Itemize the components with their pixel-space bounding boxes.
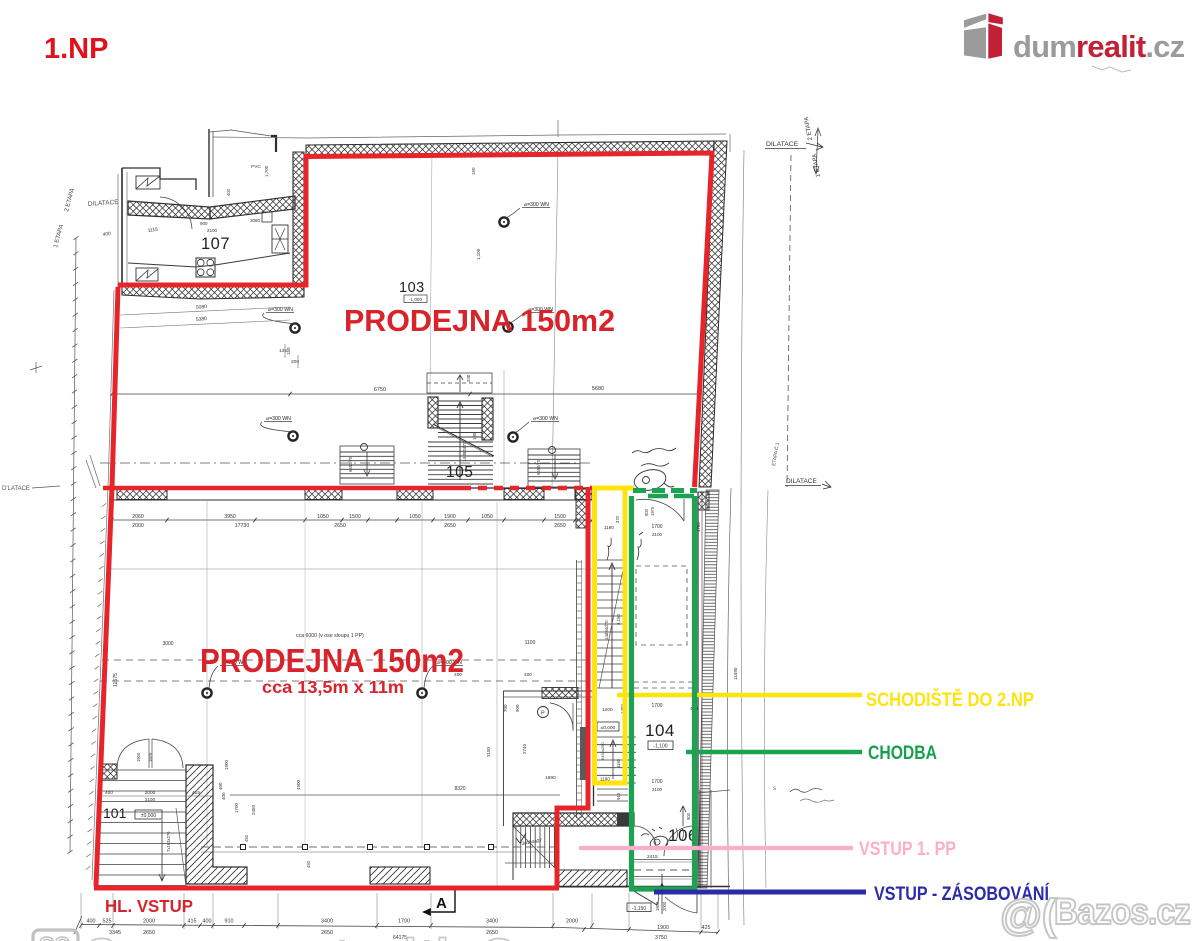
svg-text:1800: 1800 (655, 901, 660, 911)
svg-text:2000: 2000 (662, 901, 667, 911)
svg-text:HL. VSTUP: HL. VSTUP (105, 896, 193, 916)
svg-text:-1,100: -1,100 (653, 744, 667, 750)
svg-text:SCHODIŠTĚ DO 2.NP: SCHODIŠTĚ DO 2.NP (866, 689, 1034, 711)
svg-text:5380: 5380 (196, 316, 208, 323)
svg-text:400: 400 (102, 231, 111, 238)
svg-text:1970: 1970 (650, 506, 655, 516)
svg-text:910: 910 (616, 792, 621, 800)
svg-text:14d84d70: 14d84d70 (462, 441, 467, 462)
svg-text:11490: 11490 (733, 667, 738, 680)
svg-text:cca 6000 (v ose sloupu 1 PP): cca 6000 (v ose sloupu 1 PP) (296, 633, 364, 639)
svg-text:3080: 3080 (250, 218, 261, 223)
svg-text:400: 400 (221, 792, 226, 800)
svg-text:6450/70: 6450/70 (348, 456, 353, 472)
svg-text:1700: 1700 (651, 524, 662, 530)
svg-text:415: 415 (192, 790, 200, 796)
svg-text:D'LATACE: D'LATACE (2, 486, 30, 492)
svg-text:DILATACE: DILATACE (766, 141, 799, 148)
svg-text:2000: 2000 (132, 523, 144, 529)
svg-text:11575: 11575 (113, 673, 119, 687)
svg-text:PRODEJNA 150m2: PRODEJNA 150m2 (200, 642, 464, 679)
svg-text:180: 180 (472, 432, 477, 440)
svg-text:1.NP: 1.NP (44, 33, 108, 65)
svg-text:1050: 1050 (317, 514, 329, 520)
svg-text:6453x250: 6453x250 (600, 742, 605, 760)
svg-text:1,700: 1,700 (264, 165, 269, 177)
svg-text:⌀=300 WN: ⌀=300 WN (533, 416, 558, 422)
svg-text:3400: 3400 (321, 919, 333, 925)
svg-text:DILATACE: DILATACE (786, 478, 817, 485)
svg-text:1500: 1500 (554, 514, 566, 520)
svg-text:3,150: 3,150 (616, 613, 621, 625)
svg-text:@(: @( (1000, 891, 1057, 939)
svg-text:900: 900 (200, 221, 208, 226)
svg-text:PVC: PVC (251, 164, 261, 170)
svg-text:1100: 1100 (525, 640, 536, 646)
svg-text:3000: 3000 (162, 641, 173, 647)
svg-text:1900: 1900 (657, 925, 669, 931)
svg-text:900: 900 (686, 812, 691, 820)
svg-text:7x163x270: 7x163x270 (166, 831, 171, 852)
svg-text:cca 13,5m x 11m: cca 13,5m x 11m (262, 677, 404, 697)
svg-text:1900: 1900 (224, 759, 229, 770)
svg-text:107: 107 (201, 235, 230, 253)
svg-text:6750: 6750 (374, 387, 386, 393)
svg-text:103: 103 (399, 280, 425, 296)
svg-text:PRODEJNA 150m2: PRODEJNA 150m2 (344, 303, 615, 338)
svg-text:1050: 1050 (481, 514, 493, 520)
svg-text:1,100: 1,100 (476, 248, 481, 260)
svg-text:2000: 2000 (566, 919, 578, 925)
svg-text:1050: 1050 (409, 514, 421, 520)
svg-text:700: 700 (503, 704, 508, 712)
svg-text:Bazos.cz: Bazos.cz (1054, 891, 1190, 932)
svg-text:2100: 2100 (145, 797, 156, 802)
svg-text:3750: 3750 (655, 935, 667, 941)
svg-text:VSTUP 1. PP: VSTUP 1. PP (859, 839, 956, 860)
svg-text:6450/70: 6450/70 (536, 459, 541, 475)
svg-text:1200: 1200 (602, 707, 613, 713)
svg-text:1700: 1700 (234, 802, 239, 813)
svg-text:400: 400 (105, 790, 113, 796)
svg-text:1900: 1900 (136, 752, 141, 762)
svg-text:2000: 2000 (143, 919, 155, 925)
svg-text:1890: 1890 (545, 775, 556, 781)
svg-text:450: 450 (244, 834, 249, 842)
svg-text:Screencast with Goog: Screencast with Goog (86, 929, 609, 941)
svg-text:1500: 1500 (349, 514, 361, 520)
svg-text:2100: 2100 (652, 787, 663, 792)
svg-text:1700: 1700 (651, 703, 662, 709)
svg-text:2060: 2060 (132, 514, 144, 520)
svg-text:3400: 3400 (486, 919, 498, 925)
svg-text:2100: 2100 (652, 532, 663, 537)
svg-text:-1,000: -1,000 (409, 297, 422, 302)
svg-text:150: 150 (286, 347, 291, 355)
svg-text:5680: 5680 (592, 386, 604, 392)
svg-text:415: 415 (188, 919, 197, 925)
svg-text:1700: 1700 (651, 779, 662, 785)
svg-text:400: 400 (203, 919, 212, 925)
svg-text:400: 400 (218, 782, 223, 790)
svg-text:⌀=300 WN: ⌀=300 WN (524, 202, 549, 208)
svg-text:14d84d70: 14d84d70 (604, 620, 609, 640)
svg-text:1150: 1150 (616, 758, 621, 768)
svg-text:8320: 8320 (454, 786, 465, 792)
svg-text:2740: 2740 (522, 743, 527, 754)
svg-text:3150: 3150 (486, 746, 491, 757)
svg-text:2000: 2000 (145, 790, 156, 796)
svg-text:2650: 2650 (554, 523, 566, 529)
svg-text:450: 450 (306, 860, 311, 868)
svg-text:330: 330 (466, 374, 471, 382)
svg-text:±0,000: ±0,000 (601, 725, 616, 731)
svg-text:GG: GG (39, 934, 70, 941)
svg-text:CHODBA: CHODBA (868, 743, 937, 764)
svg-text:425: 425 (702, 925, 711, 931)
svg-text:dumrealit.cz: dumrealit.cz (1013, 29, 1185, 64)
svg-text:⌀=300 WN: ⌀=300 WN (266, 416, 291, 422)
svg-text:400: 400 (87, 919, 96, 925)
svg-text:150: 150 (471, 167, 476, 175)
svg-text:400: 400 (226, 188, 231, 196)
svg-text:104: 104 (645, 721, 675, 740)
svg-text:-1,150: -1,150 (632, 906, 646, 912)
svg-text:105: 105 (446, 464, 473, 481)
svg-text:1700: 1700 (398, 919, 410, 925)
svg-text:370: 370 (615, 515, 620, 523)
svg-text:2100: 2100 (207, 228, 218, 233)
svg-text:4900: 4900 (296, 779, 301, 790)
svg-text:17730: 17730 (235, 523, 250, 529)
svg-text:P: P (541, 711, 545, 717)
svg-text:2450: 2450 (251, 804, 256, 815)
svg-text:1190: 1190 (604, 525, 614, 530)
svg-text:3950: 3950 (224, 514, 236, 520)
svg-text:525: 525 (103, 919, 112, 925)
svg-text:A: A (436, 895, 447, 912)
svg-text:5080: 5080 (196, 304, 208, 311)
svg-text:910: 910 (225, 919, 234, 925)
svg-text:101: 101 (103, 805, 127, 821)
svg-text:1900: 1900 (444, 514, 456, 520)
svg-text:900: 900 (644, 508, 649, 516)
svg-text:2650: 2650 (334, 523, 346, 529)
svg-text:2650: 2650 (444, 523, 456, 529)
svg-text:1970: 1970 (148, 752, 153, 762)
svg-text:900: 900 (515, 704, 520, 712)
svg-text:s: s (773, 786, 776, 792)
svg-text:400: 400 (524, 672, 532, 677)
svg-text:±0,000: ±0,000 (141, 813, 156, 819)
